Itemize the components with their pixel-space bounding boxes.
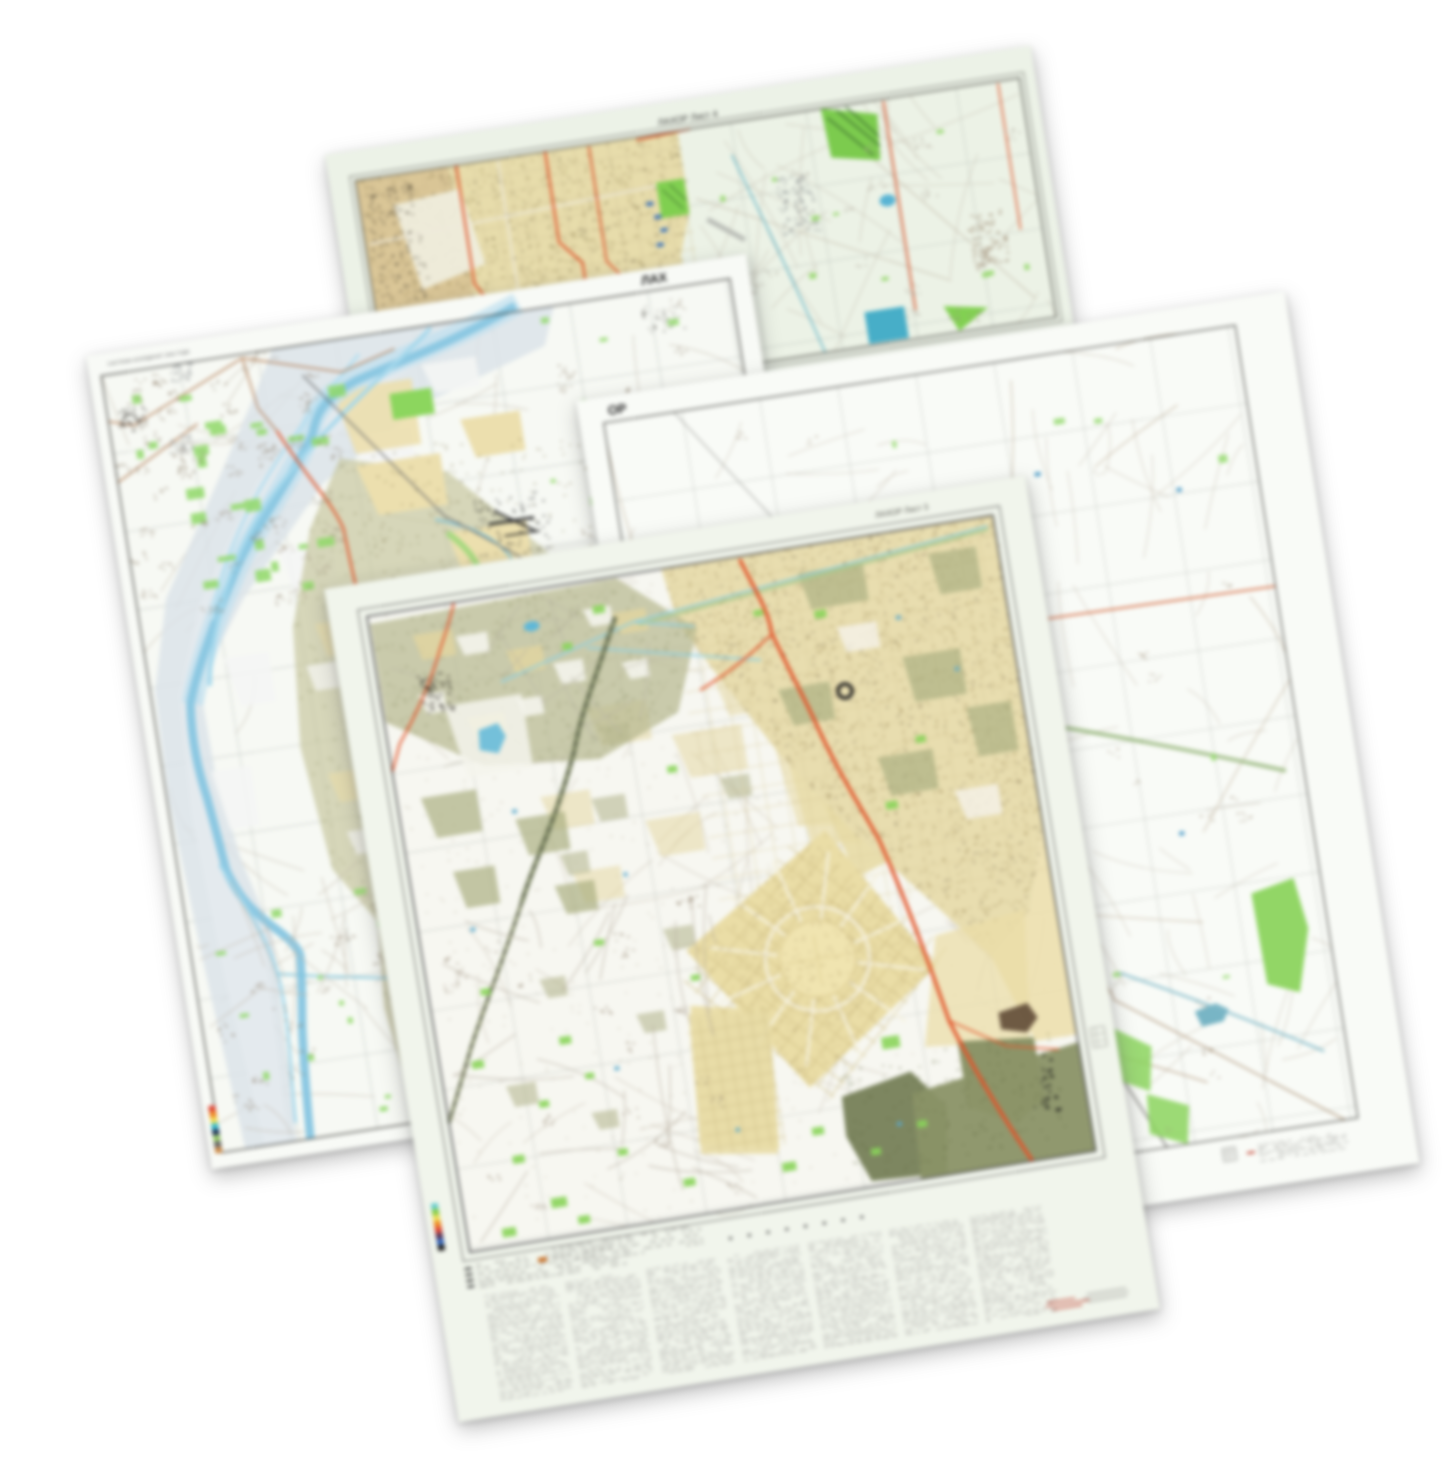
svg-text:ОР: ОР (607, 400, 628, 418)
